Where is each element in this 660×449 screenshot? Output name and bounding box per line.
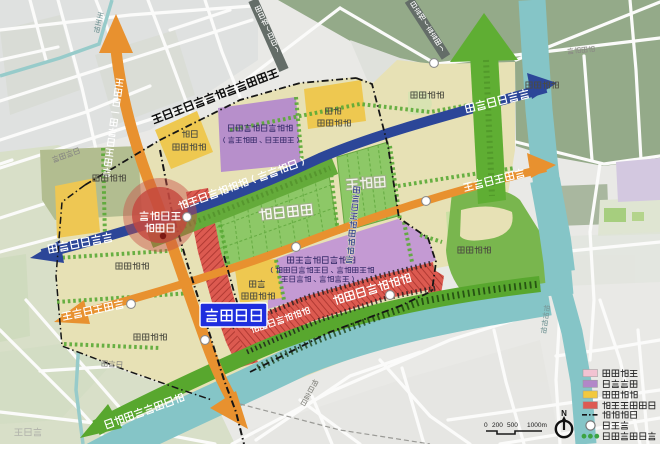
svg-text:1000m: 1000m: [527, 422, 547, 429]
svg-text:0: 0: [484, 422, 488, 429]
svg-text:500: 500: [507, 422, 518, 429]
svg-text:N: N: [561, 409, 567, 418]
svg-text:200: 200: [492, 422, 503, 429]
